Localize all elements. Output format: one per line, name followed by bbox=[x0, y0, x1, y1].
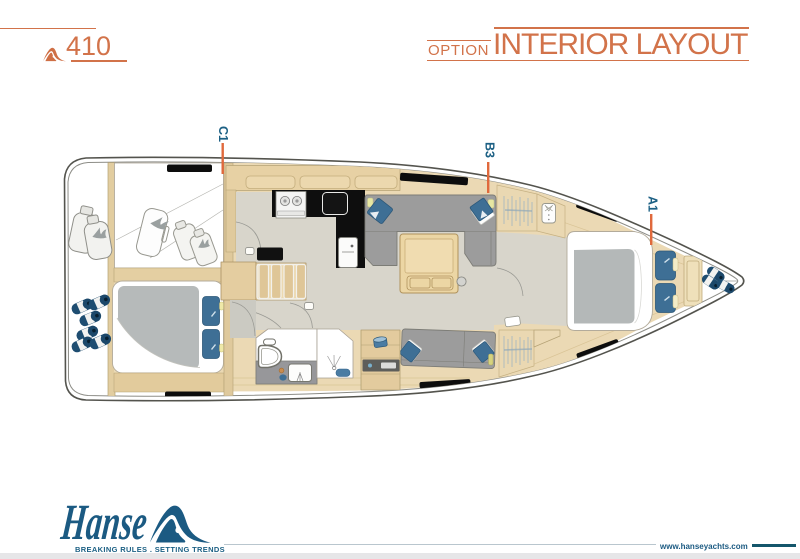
svg-text:B3: B3 bbox=[483, 142, 497, 158]
svg-text:C1: C1 bbox=[216, 126, 230, 142]
svg-text:A1: A1 bbox=[646, 196, 660, 212]
